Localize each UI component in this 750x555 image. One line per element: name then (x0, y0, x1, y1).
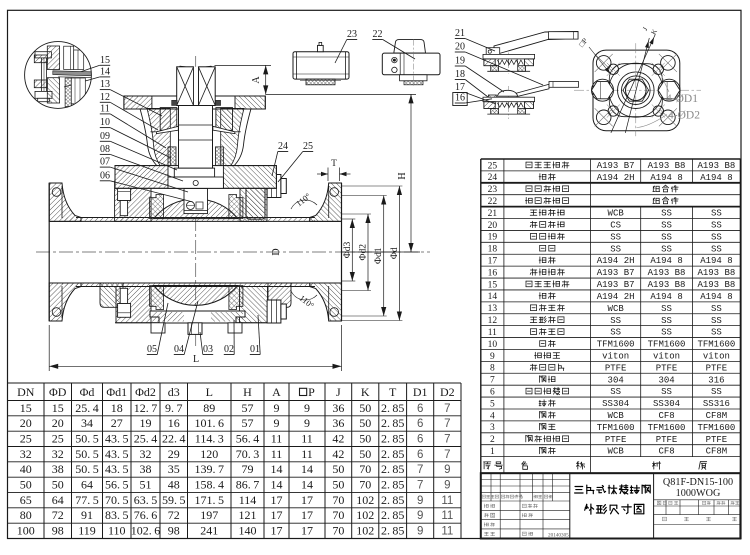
svg-text:TFM1600: TFM1600 (648, 340, 686, 350)
svg-text:171. 5: 171. 5 (195, 493, 224, 507)
svg-text:21: 21 (455, 28, 465, 39)
svg-text:A193 B7: A193 B7 (597, 268, 635, 278)
svg-text:76. 6: 76. 6 (134, 508, 157, 522)
svg-text:91: 91 (81, 508, 93, 522)
svg-text:PTFE: PTFE (656, 363, 678, 373)
svg-text:20: 20 (488, 221, 498, 231)
svg-text:viton: viton (602, 351, 629, 361)
svg-text:02: 02 (224, 344, 234, 355)
svg-text:CS: CS (610, 221, 621, 231)
svg-text:6: 6 (417, 449, 423, 461)
svg-text:2. 85: 2. 85 (381, 416, 404, 430)
svg-text:57: 57 (242, 401, 254, 415)
svg-text:PTFE: PTFE (706, 363, 728, 373)
svg-text:64: 64 (52, 493, 64, 507)
svg-text:SS: SS (661, 244, 672, 254)
svg-text:102: 102 (356, 493, 374, 507)
svg-text:□P: □P (577, 36, 589, 48)
svg-text:158. 4: 158. 4 (195, 478, 224, 492)
svg-text:CF8M: CF8M (706, 447, 728, 457)
svg-text:17: 17 (455, 82, 465, 93)
svg-text:WCB: WCB (608, 447, 625, 457)
svg-text:18: 18 (455, 69, 465, 80)
svg-text:D1: D1 (413, 385, 428, 399)
svg-text:139. 7: 139. 7 (195, 462, 224, 476)
svg-text:11: 11 (441, 526, 453, 538)
svg-text:9: 9 (304, 401, 310, 415)
svg-text:57: 57 (242, 416, 254, 430)
svg-text:22: 22 (488, 197, 498, 207)
svg-text:12: 12 (488, 316, 498, 326)
svg-text:3: 3 (490, 423, 495, 433)
svg-text:50. 5: 50. 5 (75, 447, 98, 461)
svg-text:A193 B8: A193 B8 (697, 280, 735, 290)
svg-text:4-ØD1: 4-ØD1 (666, 93, 698, 105)
svg-text:20: 20 (52, 416, 64, 430)
svg-text:SS: SS (610, 316, 621, 326)
svg-text:21: 21 (488, 209, 498, 219)
svg-text:24: 24 (488, 173, 498, 183)
svg-text:70. 5: 70. 5 (105, 493, 128, 507)
svg-text:42: 42 (332, 432, 344, 446)
svg-text:9: 9 (444, 464, 450, 476)
svg-text:23: 23 (347, 29, 357, 40)
svg-text:TFM1600: TFM1600 (597, 423, 635, 433)
svg-text:ΦD: ΦD (49, 385, 67, 399)
svg-text:A194 8: A194 8 (700, 292, 732, 302)
svg-text:70: 70 (359, 478, 371, 492)
svg-text:J: J (641, 26, 649, 33)
svg-text:77. 5: 77. 5 (75, 493, 98, 507)
svg-text:9: 9 (274, 416, 280, 430)
svg-text:SS: SS (610, 387, 621, 397)
svg-text:316: 316 (708, 375, 724, 385)
svg-text:Φd2: Φd2 (135, 385, 156, 399)
svg-text:DN: DN (17, 385, 35, 399)
svg-text:19: 19 (140, 416, 152, 430)
svg-text:110°: 110° (294, 191, 313, 209)
svg-text:19: 19 (455, 56, 465, 67)
svg-text:PTFE: PTFE (706, 435, 728, 445)
svg-text:A194 8: A194 8 (650, 173, 682, 183)
svg-text:15: 15 (20, 401, 32, 415)
svg-text:9. 7: 9. 7 (165, 401, 182, 415)
svg-text:25: 25 (488, 161, 498, 171)
svg-text:36: 36 (332, 401, 344, 415)
svg-text:A194 2H: A194 2H (597, 292, 635, 302)
svg-text:120: 120 (200, 447, 218, 461)
svg-text:TFM1600: TFM1600 (597, 340, 635, 350)
svg-text:50: 50 (332, 462, 344, 476)
svg-text:102: 102 (356, 524, 374, 538)
svg-text:14: 14 (271, 478, 283, 492)
svg-text:SS: SS (711, 244, 722, 254)
svg-text:43. 5: 43. 5 (105, 447, 128, 461)
svg-text:40: 40 (20, 462, 32, 476)
svg-text:14: 14 (301, 478, 313, 492)
svg-text:17: 17 (271, 493, 283, 507)
svg-text:29: 29 (168, 447, 180, 461)
svg-text:17: 17 (301, 524, 313, 538)
svg-text:25: 25 (20, 432, 32, 446)
svg-text:WCB: WCB (608, 304, 625, 314)
svg-text:7: 7 (444, 434, 450, 446)
svg-text:SS: SS (661, 209, 672, 219)
svg-text:9: 9 (417, 510, 423, 522)
svg-text:10: 10 (100, 117, 110, 128)
svg-text:SS: SS (711, 328, 722, 338)
svg-text:70: 70 (332, 493, 344, 507)
svg-text:14: 14 (301, 462, 313, 476)
svg-text:11: 11 (488, 328, 497, 338)
svg-text:5: 5 (490, 399, 495, 409)
svg-text:7: 7 (444, 403, 450, 415)
svg-text:70. 3: 70. 3 (236, 447, 259, 461)
svg-text:24: 24 (278, 141, 288, 152)
svg-text:63. 5: 63. 5 (134, 493, 157, 507)
svg-text:Q81F-DN15-100: Q81F-DN15-100 (663, 477, 733, 488)
svg-text:8: 8 (490, 364, 495, 374)
svg-text:17: 17 (271, 524, 283, 538)
svg-text:114: 114 (239, 493, 257, 507)
svg-text:CF8M: CF8M (706, 411, 728, 421)
svg-text:20140305: 20140305 (548, 533, 569, 539)
svg-text:17: 17 (301, 493, 313, 507)
svg-text:Φd: Φd (80, 385, 95, 399)
svg-text:114. 3: 114. 3 (195, 432, 224, 446)
svg-text:SS: SS (661, 316, 672, 326)
svg-text:16: 16 (488, 268, 498, 278)
svg-text:89: 89 (203, 401, 215, 415)
svg-text:D: D (271, 248, 282, 255)
svg-text:7: 7 (417, 464, 423, 476)
svg-text:50. 5: 50. 5 (75, 432, 98, 446)
svg-text:SS: SS (711, 304, 722, 314)
svg-text:J: J (336, 385, 341, 399)
svg-text:17: 17 (301, 508, 313, 522)
svg-text:100: 100 (17, 524, 35, 538)
svg-text:A: A (272, 385, 281, 399)
svg-text:SS: SS (661, 221, 672, 231)
svg-text:304: 304 (658, 375, 674, 385)
svg-text:SS: SS (661, 232, 672, 242)
svg-text:51: 51 (140, 478, 152, 492)
svg-text:2. 85: 2. 85 (381, 401, 404, 415)
svg-text:32: 32 (20, 447, 32, 461)
svg-text:Φd2: Φd2 (359, 244, 369, 261)
svg-text:101. 6: 101. 6 (195, 416, 224, 430)
svg-text:H: H (397, 172, 408, 179)
svg-text:25: 25 (52, 432, 64, 446)
svg-text:38: 38 (140, 462, 152, 476)
svg-text:83. 5: 83. 5 (105, 508, 128, 522)
svg-text:2. 85: 2. 85 (381, 493, 404, 507)
svg-text:19: 19 (488, 233, 498, 243)
svg-text:09: 09 (100, 131, 110, 142)
svg-text:Φd1: Φd1 (374, 247, 384, 264)
svg-text:SS304: SS304 (602, 399, 629, 409)
svg-text:03: 03 (203, 344, 213, 355)
svg-text:D2: D2 (440, 385, 455, 399)
svg-text:11: 11 (441, 510, 453, 522)
svg-text:07: 07 (100, 157, 110, 168)
svg-text:2. 85: 2. 85 (381, 508, 404, 522)
svg-text:SS304: SS304 (653, 399, 680, 409)
svg-text:SS: SS (711, 316, 722, 326)
svg-text:Φd: Φd (390, 247, 400, 259)
svg-text:1000WOG: 1000WOG (676, 488, 721, 499)
svg-text:43. 5: 43. 5 (105, 462, 128, 476)
svg-text:PTFE: PTFE (656, 435, 678, 445)
svg-text:20: 20 (455, 42, 465, 53)
svg-text:98: 98 (52, 524, 64, 538)
svg-text:42: 42 (332, 447, 344, 461)
svg-text:102: 102 (356, 508, 374, 522)
svg-text:50: 50 (359, 447, 371, 461)
svg-text:72: 72 (168, 508, 180, 522)
svg-text:50: 50 (359, 432, 371, 446)
svg-text:25. 4: 25. 4 (75, 401, 98, 415)
svg-text:25: 25 (303, 141, 313, 152)
svg-text:50: 50 (332, 478, 344, 492)
svg-text:SS: SS (661, 328, 672, 338)
svg-text:PTFE: PTFE (605, 435, 627, 445)
svg-text:2: 2 (490, 435, 495, 445)
svg-text:35: 35 (168, 462, 180, 476)
svg-text:70: 70 (332, 508, 344, 522)
svg-text:48: 48 (168, 478, 180, 492)
svg-text:14: 14 (100, 66, 110, 77)
svg-text:WCB: WCB (608, 411, 625, 421)
svg-text:50: 50 (52, 478, 64, 492)
svg-text:110°: 110° (298, 293, 317, 311)
svg-text:2. 85: 2. 85 (381, 432, 404, 446)
svg-text:A193 B8: A193 B8 (648, 161, 686, 171)
svg-text:50: 50 (359, 416, 371, 430)
svg-text:SS: SS (711, 221, 722, 231)
svg-text:10: 10 (488, 340, 498, 350)
svg-text:65: 65 (20, 493, 32, 507)
svg-text:16: 16 (455, 93, 465, 104)
svg-text:16: 16 (168, 416, 180, 430)
svg-text:SS: SS (610, 232, 621, 242)
svg-text:4: 4 (490, 411, 495, 421)
svg-text:121: 121 (239, 508, 257, 522)
svg-text:34: 34 (81, 416, 93, 430)
svg-text:64: 64 (81, 478, 93, 492)
svg-text:A194 8: A194 8 (650, 256, 682, 266)
svg-text:38: 38 (52, 462, 64, 476)
svg-text:18: 18 (488, 245, 498, 255)
svg-text:SS: SS (610, 328, 621, 338)
svg-text:36: 36 (332, 416, 344, 430)
svg-text:13: 13 (488, 304, 498, 314)
svg-text:T: T (331, 159, 337, 169)
svg-text:6: 6 (490, 387, 495, 397)
svg-text:59. 5: 59. 5 (162, 493, 185, 507)
svg-text:110: 110 (108, 524, 126, 538)
svg-text:119: 119 (78, 524, 96, 538)
svg-text:05: 05 (147, 344, 157, 355)
svg-text:A193 B8: A193 B8 (697, 268, 735, 278)
svg-text:9: 9 (444, 480, 450, 492)
svg-text:2. 85: 2. 85 (381, 478, 404, 492)
svg-text:A194 2H: A194 2H (597, 256, 635, 266)
svg-text:SS: SS (711, 387, 722, 397)
svg-text:A194 8: A194 8 (700, 173, 732, 183)
svg-text:2. 85: 2. 85 (381, 524, 404, 538)
svg-text:A193 B7: A193 B7 (597, 161, 635, 171)
svg-text:7: 7 (490, 376, 495, 386)
svg-text:17: 17 (271, 508, 283, 522)
svg-text:304: 304 (608, 375, 624, 385)
svg-text:01: 01 (250, 344, 260, 355)
svg-text:K: K (650, 28, 659, 36)
svg-text:L: L (206, 385, 213, 399)
svg-text:13: 13 (100, 79, 110, 90)
svg-text:50: 50 (359, 401, 371, 415)
svg-text:K: K (361, 385, 370, 399)
svg-text:50: 50 (20, 478, 32, 492)
svg-text:32: 32 (52, 447, 64, 461)
svg-text:Φd3: Φd3 (343, 242, 353, 259)
svg-text:72: 72 (52, 508, 64, 522)
svg-text:9: 9 (490, 352, 495, 362)
svg-text:A193 B8: A193 B8 (648, 268, 686, 278)
svg-text:9: 9 (417, 495, 423, 507)
svg-text:d3: d3 (168, 385, 180, 399)
svg-text:9: 9 (274, 401, 280, 415)
svg-text:80: 80 (20, 508, 32, 522)
svg-text:86. 7: 86. 7 (236, 478, 259, 492)
svg-text:32: 32 (140, 447, 152, 461)
svg-text:A193 B8: A193 B8 (697, 161, 735, 171)
svg-text:P: P (308, 385, 315, 399)
svg-text:SS: SS (711, 209, 722, 219)
svg-text:SS: SS (661, 387, 672, 397)
svg-text:22. 4: 22. 4 (162, 432, 185, 446)
svg-text:A: A (251, 76, 262, 84)
svg-text:4-ØD2: 4-ØD2 (668, 110, 700, 122)
svg-text:6: 6 (417, 434, 423, 446)
svg-text:14: 14 (271, 462, 283, 476)
svg-text:viton: viton (653, 351, 680, 361)
svg-text:11: 11 (441, 495, 453, 507)
svg-text:T: T (389, 385, 397, 399)
svg-text:11: 11 (301, 447, 313, 461)
svg-text:TFM1600: TFM1600 (648, 423, 686, 433)
svg-text:viton: viton (703, 351, 730, 361)
svg-text:SS316: SS316 (703, 399, 730, 409)
svg-text:140: 140 (239, 524, 257, 538)
svg-text:A193 B7: A193 B7 (597, 280, 635, 290)
svg-text:56. 4: 56. 4 (236, 432, 259, 446)
svg-text:7: 7 (417, 480, 423, 492)
svg-text:WCB: WCB (608, 209, 625, 219)
svg-text:22: 22 (373, 29, 383, 40)
svg-text:H: H (243, 385, 252, 399)
svg-text:TFM1600: TFM1600 (697, 423, 735, 433)
svg-text:102. 6: 102. 6 (131, 524, 160, 538)
svg-text:9: 9 (417, 526, 423, 538)
svg-text:06: 06 (100, 170, 110, 181)
svg-text:A194 2H: A194 2H (597, 173, 635, 183)
svg-text:TFM1600: TFM1600 (697, 340, 735, 350)
svg-text:CF8: CF8 (658, 411, 674, 421)
svg-text:70: 70 (332, 524, 344, 538)
svg-text:04: 04 (174, 344, 184, 355)
svg-text:43. 5: 43. 5 (105, 432, 128, 446)
svg-text:A194 8: A194 8 (650, 292, 682, 302)
svg-text:Φd1: Φd1 (106, 385, 127, 399)
svg-text:79: 79 (242, 462, 254, 476)
svg-text:6: 6 (417, 403, 423, 415)
svg-text:SS: SS (711, 232, 722, 242)
svg-text:15: 15 (100, 55, 110, 66)
svg-text:17: 17 (488, 257, 498, 267)
svg-text:15: 15 (52, 401, 64, 415)
svg-text:14: 14 (488, 292, 498, 302)
svg-text:2. 85: 2. 85 (381, 462, 404, 476)
svg-text:CF8: CF8 (658, 447, 674, 457)
svg-text:2. 85: 2. 85 (381, 447, 404, 461)
svg-text:7: 7 (444, 449, 450, 461)
svg-text:12. 7: 12. 7 (134, 401, 157, 415)
svg-text:L: L (193, 354, 199, 365)
svg-text:08: 08 (100, 144, 110, 155)
svg-text:11: 11 (271, 447, 283, 461)
svg-text:98: 98 (168, 524, 180, 538)
svg-text:SS: SS (661, 304, 672, 314)
svg-text:50. 5: 50. 5 (75, 462, 98, 476)
svg-text:SS: SS (610, 244, 621, 254)
svg-text:A193 B8: A193 B8 (648, 280, 686, 290)
svg-text:6: 6 (417, 418, 423, 430)
svg-text:15: 15 (488, 280, 498, 290)
svg-text:11: 11 (301, 432, 313, 446)
svg-text:A194 8: A194 8 (700, 256, 732, 266)
svg-text:12: 12 (100, 92, 110, 103)
svg-text:56. 5: 56. 5 (105, 478, 128, 492)
svg-text:PTFE: PTFE (605, 363, 627, 373)
svg-text:25. 4: 25. 4 (134, 432, 157, 446)
svg-text:197: 197 (200, 508, 218, 522)
svg-text:23: 23 (488, 185, 498, 195)
svg-text:18: 18 (111, 401, 123, 415)
svg-text:27: 27 (111, 416, 123, 430)
svg-text:9: 9 (304, 416, 310, 430)
svg-text:11: 11 (271, 432, 283, 446)
svg-text:241: 241 (200, 524, 218, 538)
svg-text:1: 1 (490, 447, 495, 457)
svg-text:7: 7 (444, 418, 450, 430)
svg-text:20: 20 (20, 416, 32, 430)
svg-text:70: 70 (359, 462, 371, 476)
svg-text:11: 11 (100, 103, 110, 114)
